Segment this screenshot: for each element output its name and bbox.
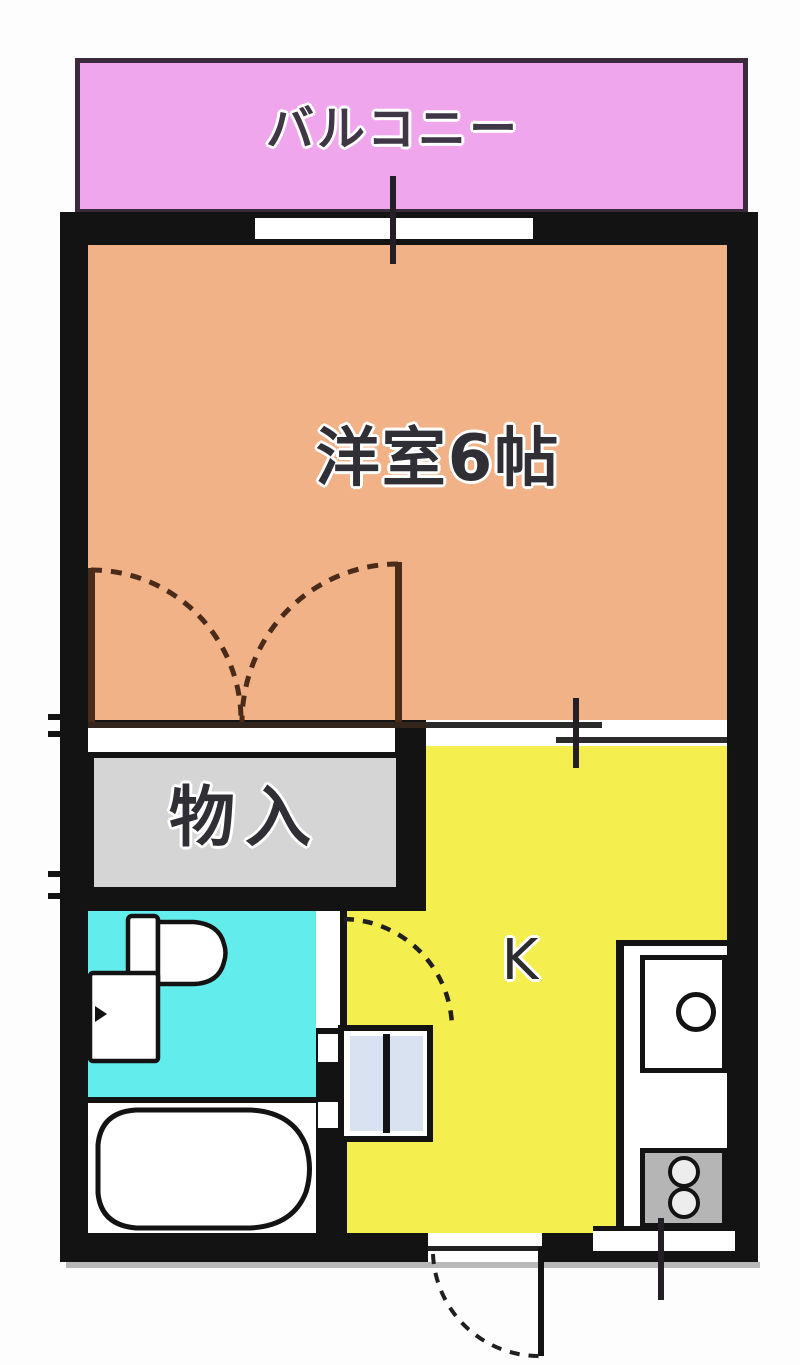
closet-door-arc-left: [91, 570, 241, 720]
closet-door-arc-right: [242, 564, 398, 722]
wall-joint-mark: [48, 714, 61, 720]
fixtures-overlay: [0, 0, 800, 1365]
kitchen-label: K: [462, 930, 578, 992]
entrance-door-arc: [433, 1254, 541, 1356]
balcony-label: バルコニー: [57, 103, 729, 156]
western-room-label: 洋室6帖: [118, 424, 758, 494]
closet-label: 物入: [90, 782, 400, 855]
wall-joint-mark: [48, 893, 61, 899]
wall-joint-mark: [48, 871, 61, 877]
toilet-door-arc: [344, 919, 452, 1029]
floorplan: バルコニー 洋室6帖 物入 K: [0, 0, 800, 1365]
toilet: [158, 922, 226, 984]
bathtub: [98, 1110, 310, 1228]
wall-joint-mark: [48, 731, 61, 737]
